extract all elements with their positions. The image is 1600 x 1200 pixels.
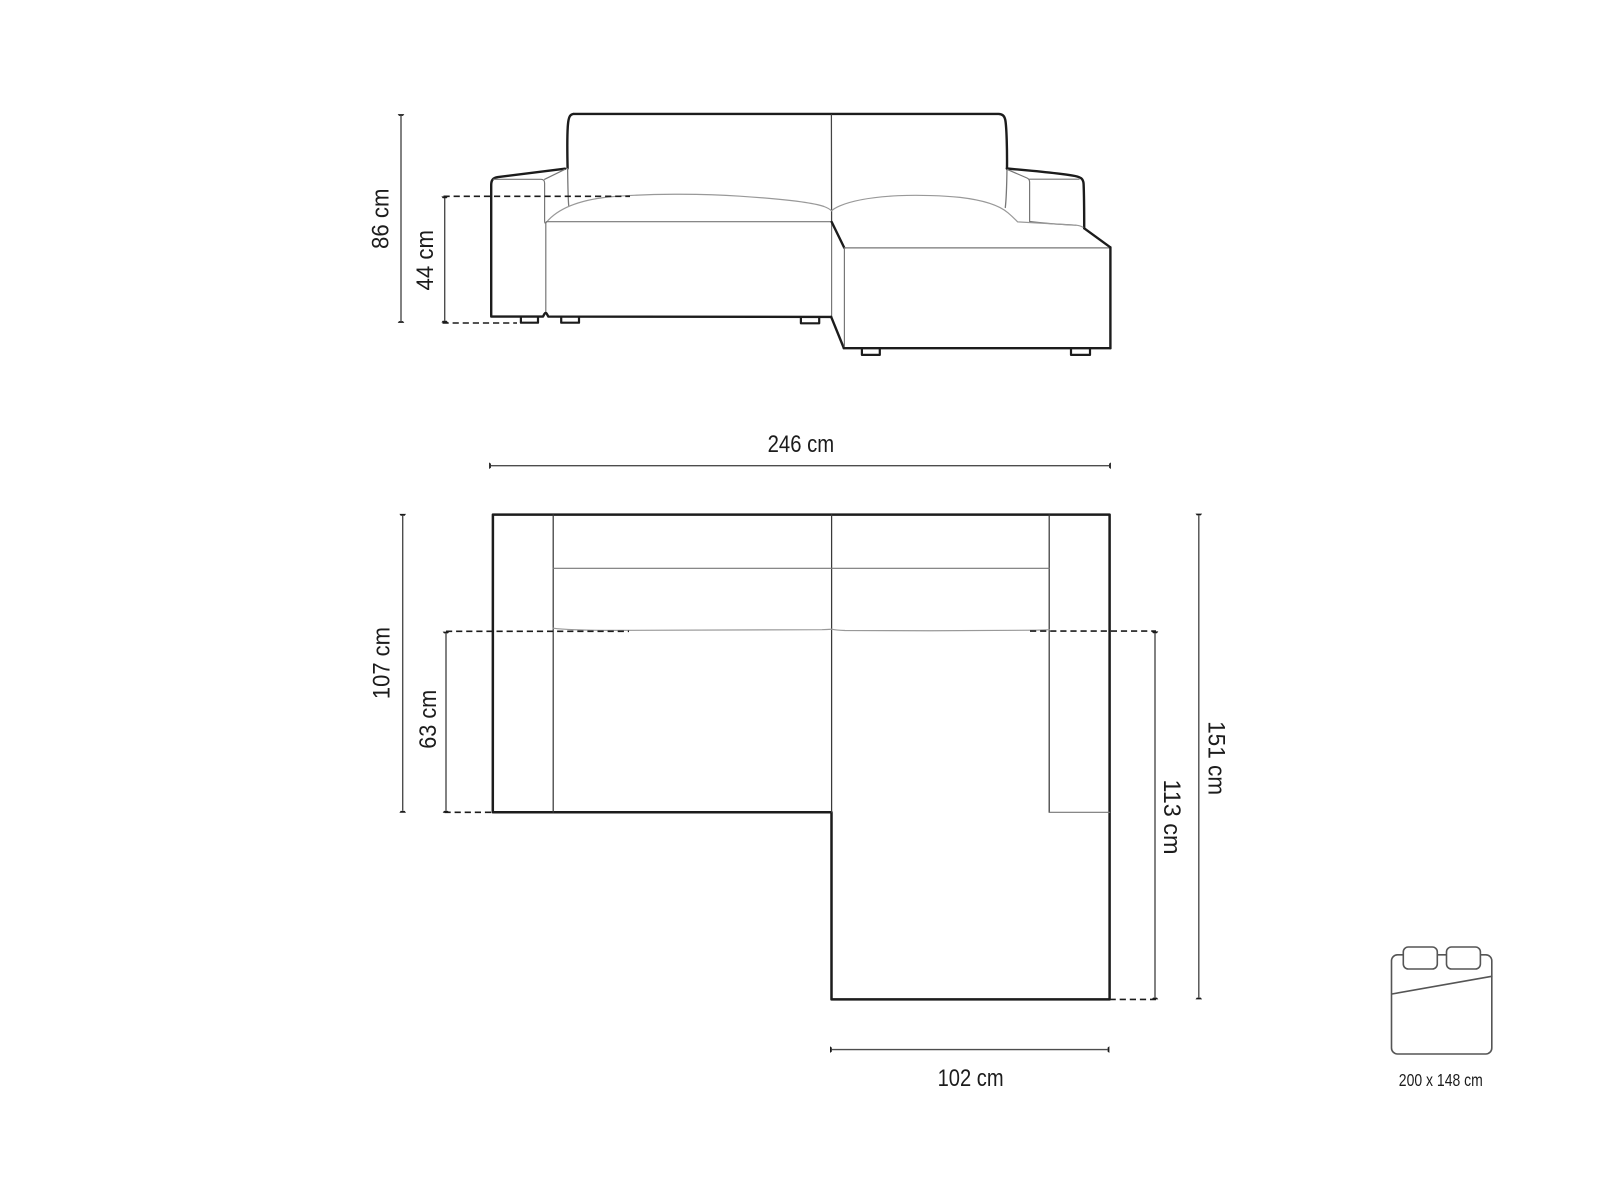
svg-text:44 cm: 44 cm: [412, 230, 439, 291]
svg-text:113 cm: 113 cm: [1158, 780, 1185, 855]
svg-text:151 cm: 151 cm: [1203, 721, 1230, 795]
svg-text:63 cm: 63 cm: [415, 690, 442, 749]
svg-text:102 cm: 102 cm: [938, 1065, 1004, 1092]
svg-text:107 cm: 107 cm: [368, 627, 395, 699]
svg-text:86 cm: 86 cm: [367, 188, 394, 249]
svg-text:200 x 148 cm: 200 x 148 cm: [1399, 1070, 1483, 1090]
svg-text:246 cm: 246 cm: [768, 431, 835, 458]
